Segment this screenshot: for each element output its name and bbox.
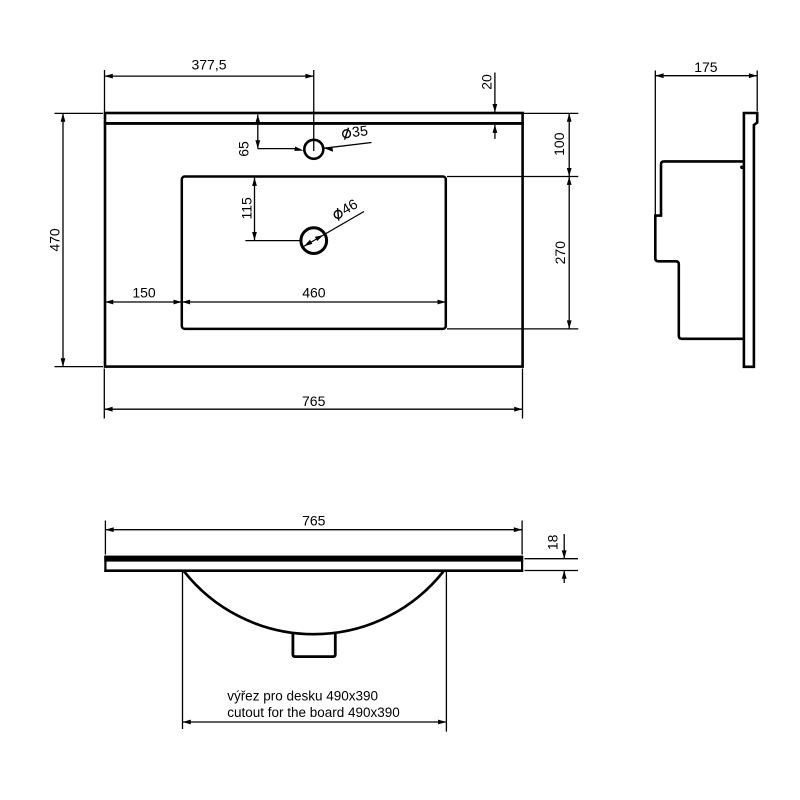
svg-text:470: 470 [46, 228, 62, 252]
svg-text:150: 150 [132, 284, 156, 300]
svg-text:35: 35 [351, 123, 369, 141]
svg-text:460: 460 [302, 284, 326, 300]
svg-text:20: 20 [479, 74, 495, 90]
svg-text:765: 765 [302, 512, 326, 528]
svg-text:100: 100 [551, 132, 567, 156]
svg-text:270: 270 [552, 241, 568, 265]
svg-text:65: 65 [236, 141, 252, 157]
svg-text:cutout for the board 490x390: cutout for the board 490x390 [227, 705, 400, 720]
svg-text:18: 18 [544, 534, 560, 550]
svg-text:výřez pro desku 490x390: výřez pro desku 490x390 [227, 689, 378, 704]
svg-text:175: 175 [694, 59, 718, 75]
svg-text:765: 765 [302, 393, 326, 409]
svg-text:377,5: 377,5 [191, 57, 226, 73]
svg-text:115: 115 [238, 197, 254, 220]
